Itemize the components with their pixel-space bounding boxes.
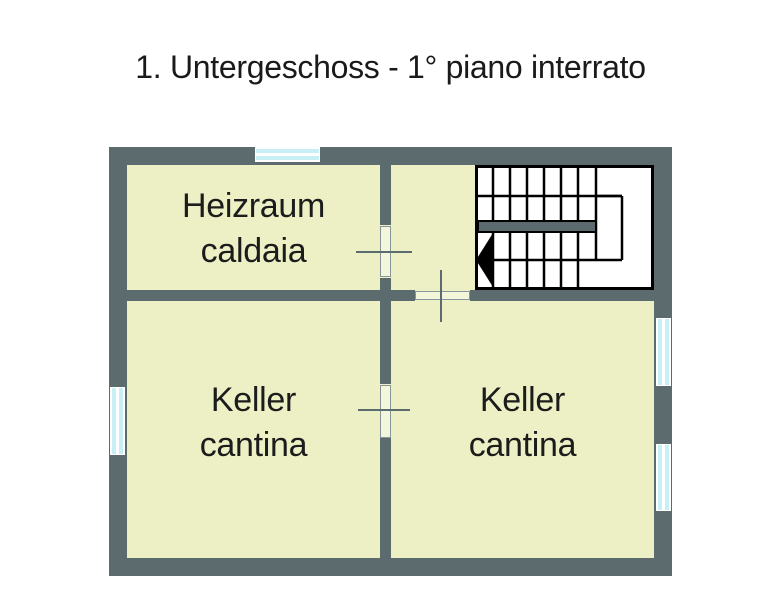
window-left <box>110 387 125 455</box>
wall-partition-vertical-lower <box>380 438 391 558</box>
window-glass-bar <box>665 445 669 510</box>
window-top <box>255 147 320 162</box>
wall-partition-horizontal-left <box>127 290 415 301</box>
window-right-upper <box>656 318 671 386</box>
room-name-de: Keller <box>391 378 654 423</box>
staircase <box>475 165 654 290</box>
room-name-de: Keller <box>127 378 380 423</box>
window-glass-bar <box>256 156 319 160</box>
window-glass-bar <box>658 445 662 510</box>
room-name-it: caldaia <box>127 229 380 274</box>
floorplan-page: 1. Untergeschoss - 1° piano interrato <box>0 0 781 600</box>
window-glass-bar <box>665 319 669 385</box>
page-title: 1. Untergeschoss - 1° piano interrato <box>0 50 781 85</box>
door-leaf-hall-to-keller <box>415 291 470 300</box>
door-leaf-between-kellers <box>380 385 391 438</box>
door-axis-hall-to-keller <box>440 270 442 322</box>
room-label-heizraum: Heizraum caldaia <box>127 184 380 274</box>
window-glass-bar <box>119 388 123 454</box>
window-right-lower <box>656 444 671 511</box>
stair-spine-wall <box>478 221 596 232</box>
wall-partition-horizontal-right <box>470 290 654 301</box>
room-label-keller-left: Keller cantina <box>127 378 380 468</box>
room-label-keller-right: Keller cantina <box>391 378 654 468</box>
window-glass-bar <box>112 388 116 454</box>
wall-partition-vertical-upper <box>380 165 391 225</box>
room-name-de: Heizraum <box>127 184 380 229</box>
room-name-it: cantina <box>391 423 654 468</box>
floor-plan: Heizraum caldaia Keller cantina Keller c… <box>109 147 672 576</box>
window-glass-bar <box>256 149 319 153</box>
room-name-it: cantina <box>127 423 380 468</box>
window-glass-bar <box>658 319 662 385</box>
